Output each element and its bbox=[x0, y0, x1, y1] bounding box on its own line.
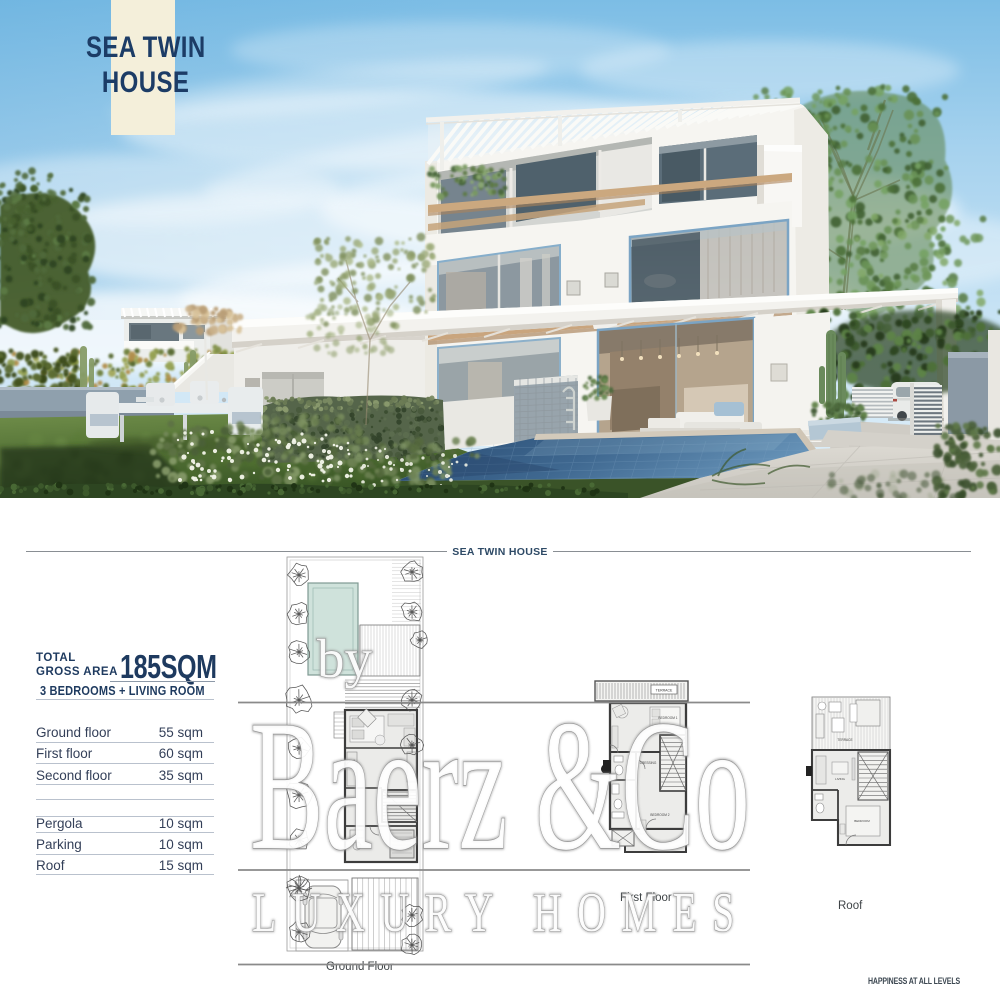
svg-text:LUXURY HOMES: LUXURY HOMES bbox=[252, 882, 750, 944]
svg-text:Baerz &Co: Baerz &Co bbox=[250, 682, 750, 889]
svg-text:by: by bbox=[317, 628, 373, 689]
